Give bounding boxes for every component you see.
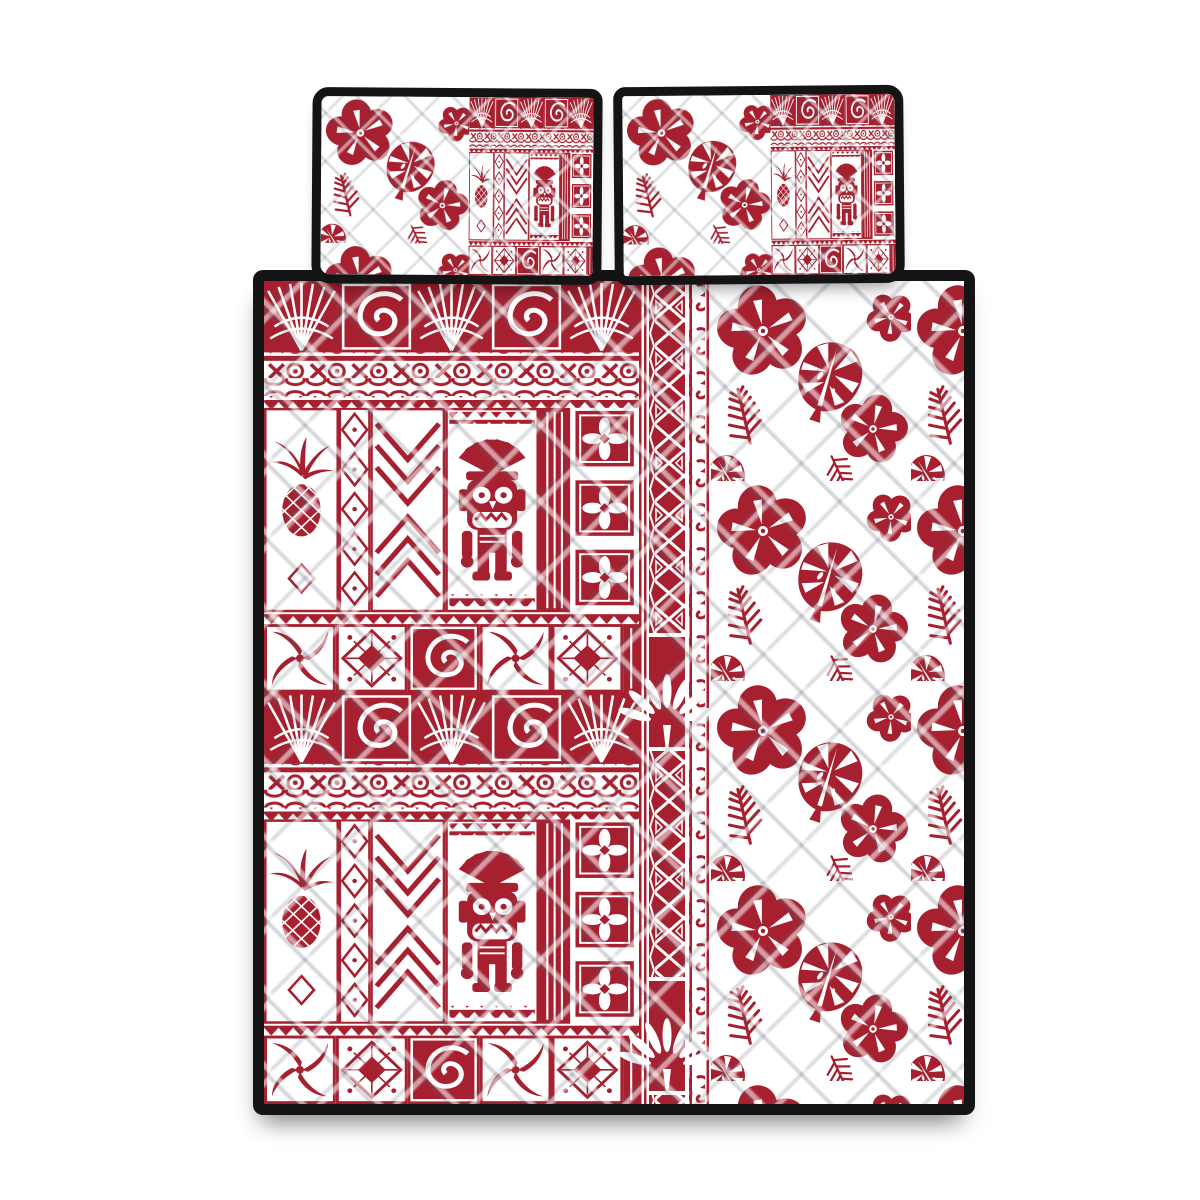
pillow-left-print <box>320 96 593 276</box>
quilt <box>253 270 975 1115</box>
pillow-right-print <box>622 94 896 276</box>
pillow-tapa-half <box>466 97 594 276</box>
pillow-hibiscus-half <box>622 95 772 276</box>
pillow-left <box>311 87 602 285</box>
pillow-tapa-half <box>767 94 895 275</box>
scene-caption: Hawaiian quilt bed set: red-on-white Pol… <box>0 0 1 1</box>
pillow-hibiscus-half <box>320 96 469 275</box>
tapa-patchwork-panel <box>264 281 639 1104</box>
bedding-set-scene: Hawaiian quilt bed set: red-on-white Pol… <box>0 0 1200 1200</box>
pillow-right <box>613 85 905 286</box>
hibiscus-panel <box>711 281 964 1104</box>
quilt-print <box>264 281 964 1104</box>
